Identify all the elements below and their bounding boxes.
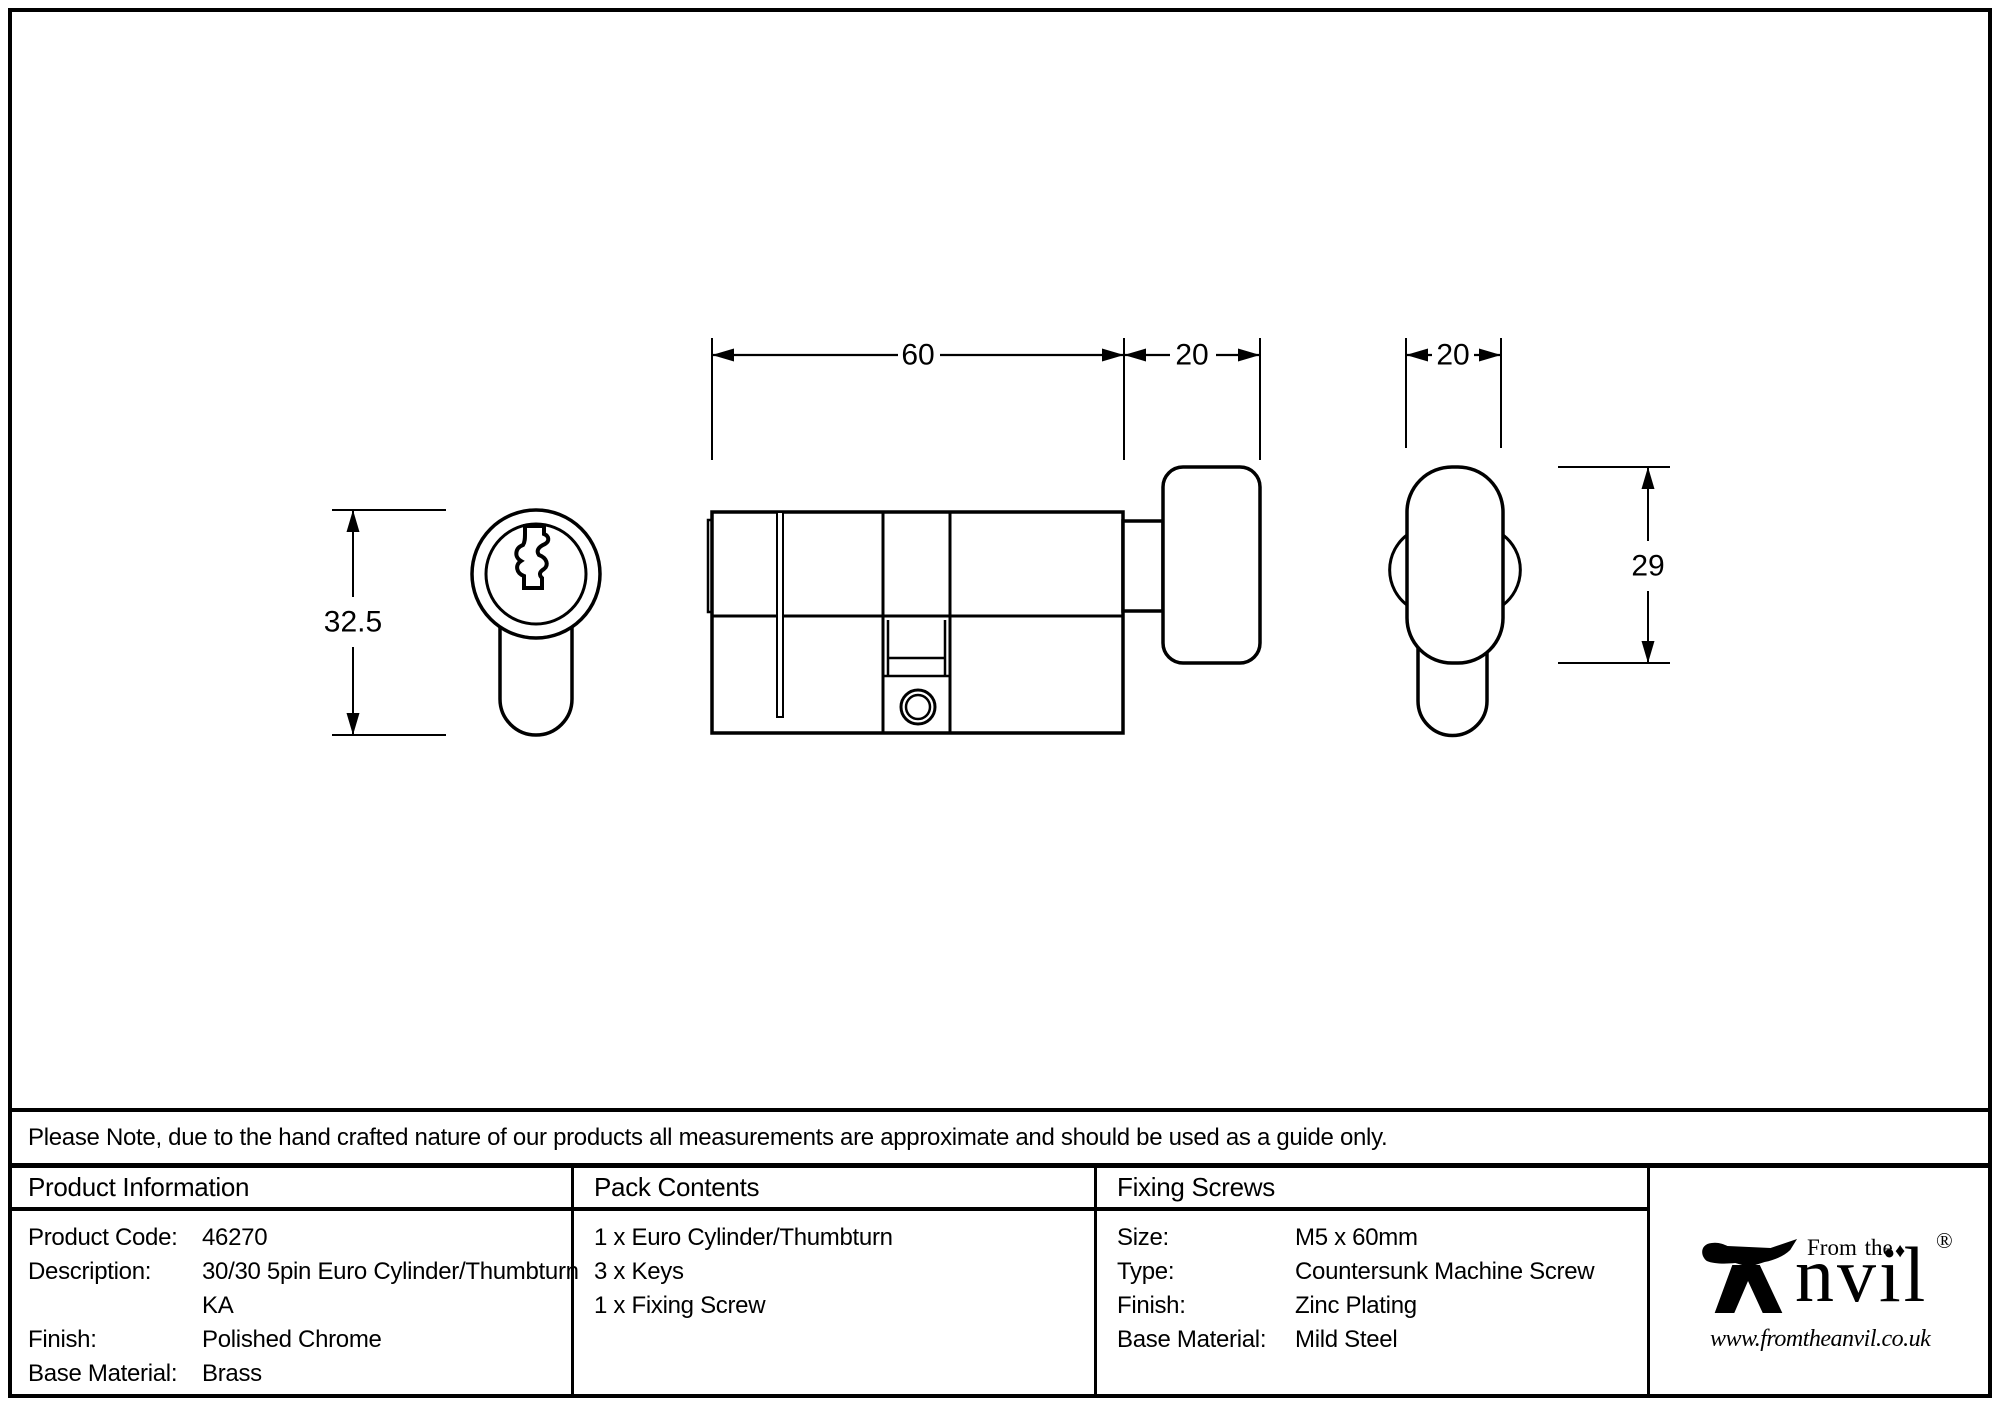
screw-size-label: Size:	[1117, 1221, 1295, 1255]
product-information-header: Product Information	[8, 1168, 571, 1211]
screw-material-value: Mild Steel	[1295, 1323, 1397, 1357]
thumbturn-stem-side	[1123, 521, 1163, 611]
brand-logo-cell: From the ♦ nvil ® www.fromtheanvil.co.uk	[1650, 1168, 1992, 1398]
product-code-label: Product Code:	[28, 1221, 202, 1255]
pin-joint-line	[777, 512, 783, 717]
screw-type-label: Type:	[1117, 1255, 1295, 1289]
dim-label-32-5: 32.5	[324, 606, 382, 639]
description-value-line2: KA	[202, 1289, 579, 1323]
front-view-cylinder-face	[472, 510, 600, 735]
fixing-screws-column: Fixing Screws Size: M5 x 60mm Type: Coun…	[1097, 1168, 1650, 1398]
pack-contents-column: Pack Contents 1 x Euro Cylinder/Thumbtur…	[574, 1168, 1097, 1398]
screw-type-value: Countersunk Machine Screw	[1295, 1255, 1594, 1289]
base-material-label: Base Material:	[28, 1357, 202, 1391]
measurement-note-text: Please Note, due to the hand crafted nat…	[28, 1124, 1387, 1152]
screw-finish-value: Zinc Plating	[1295, 1289, 1417, 1323]
registered-trademark-icon: ®	[1936, 1228, 1953, 1254]
dimension-knob-length: 20	[1124, 338, 1260, 460]
dim-label-20-knob: 20	[1175, 339, 1208, 372]
screw-material-label: Base Material:	[1117, 1323, 1295, 1357]
end-view-thumbturn	[1390, 467, 1521, 736]
pack-item-screw: 1 x Fixing Screw	[594, 1289, 1094, 1323]
product-information-column: Product Information Product Code: 46270 …	[8, 1168, 574, 1398]
product-code-value: 46270	[202, 1221, 267, 1255]
screw-material-row: Base Material: Mild Steel	[1117, 1323, 1647, 1357]
spec-table: Product Information Product Code: 46270 …	[8, 1163, 1992, 1398]
logo-brand-text: nvil	[1795, 1238, 1928, 1312]
dimension-body-length: 60	[712, 338, 1124, 460]
description-label: Description:	[28, 1255, 202, 1323]
product-drawing-page: 32.5 60 20	[0, 0, 2000, 1406]
finish-label: Finish:	[28, 1323, 202, 1357]
side-view-cylinder	[708, 467, 1260, 733]
screw-finish-row: Finish: Zinc Plating	[1117, 1289, 1647, 1323]
dimension-cylinder-height: 32.5	[324, 510, 446, 735]
cylinder-body	[712, 512, 1123, 733]
barrel-arc-left	[1390, 535, 1407, 605]
logo-website-url: www.fromtheanvil.co.uk	[1710, 1326, 1930, 1353]
description-row: Description: 30/30 5pin Euro Cylinder/Th…	[28, 1255, 571, 1323]
thumbturn-knob-face	[1407, 467, 1503, 663]
description-value-line1: 30/30 5pin Euro Cylinder/Thumbturn	[202, 1255, 579, 1289]
finish-value: Polished Chrome	[202, 1323, 382, 1357]
base-material-value: Brass	[202, 1357, 262, 1391]
pack-contents-header: Pack Contents	[574, 1168, 1094, 1211]
screw-type-row: Type: Countersunk Machine Screw	[1117, 1255, 1647, 1289]
screw-finish-label: Finish:	[1117, 1289, 1295, 1323]
dim-label-29: 29	[1631, 550, 1664, 583]
base-material-row: Base Material: Brass	[28, 1357, 571, 1391]
measurement-note-row: Please Note, due to the hand crafted nat…	[8, 1108, 1992, 1163]
product-code-row: Product Code: 46270	[28, 1221, 571, 1255]
screw-size-value: M5 x 60mm	[1295, 1221, 1418, 1255]
dimension-knob-face-width: 20	[1406, 338, 1501, 448]
finish-row: Finish: Polished Chrome	[28, 1323, 571, 1357]
anvil-icon	[1698, 1236, 1800, 1316]
dim-label-20-face: 20	[1436, 339, 1469, 372]
screw-size-row: Size: M5 x 60mm	[1117, 1221, 1647, 1255]
pack-item-keys: 3 x Keys	[594, 1255, 1094, 1289]
barrel-arc-right	[1503, 535, 1520, 605]
technical-drawing: 32.5 60 20	[0, 0, 2000, 1108]
thumbturn-knob-side	[1163, 467, 1260, 663]
pack-item-cylinder: 1 x Euro Cylinder/Thumbturn	[594, 1221, 1094, 1255]
dimension-knob-height: 29	[1558, 467, 1670, 663]
dim-label-60: 60	[901, 339, 934, 372]
fixing-screws-header: Fixing Screws	[1097, 1168, 1647, 1211]
